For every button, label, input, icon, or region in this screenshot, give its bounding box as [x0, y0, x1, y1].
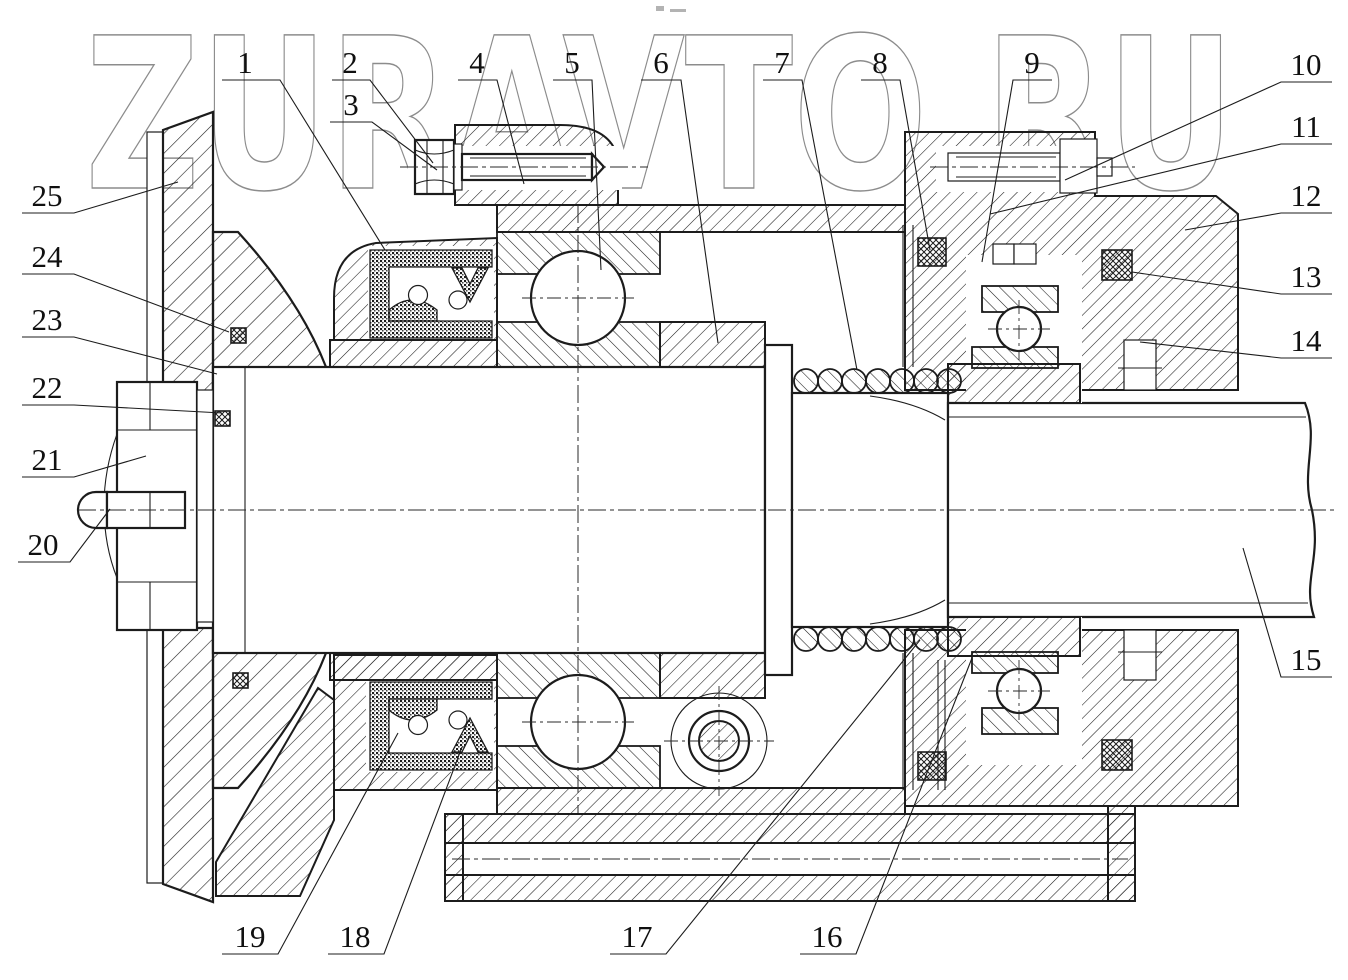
engineering-drawing-canvas: ZURAVTO.RU — [0, 0, 1348, 980]
housing-bottom-wall — [497, 788, 905, 814]
callout-10: 10 — [1291, 47, 1322, 82]
callout-24: 24 — [32, 239, 64, 274]
callout-19: 19 — [235, 919, 266, 954]
callout-15: 15 — [1291, 642, 1322, 677]
spacer-washer-lower — [1118, 630, 1162, 680]
callout-12: 12 — [1291, 178, 1322, 213]
callout-13: 13 — [1291, 259, 1322, 294]
callout-25: 25 — [32, 178, 63, 213]
shaft-hub-right-upper — [948, 364, 1080, 403]
callout-16: 16 — [812, 919, 843, 954]
callout-3: 3 — [343, 87, 359, 122]
callout-18: 18 — [340, 919, 371, 954]
spacer-washer-upper — [1118, 340, 1162, 390]
callout-1: 1 — [237, 45, 253, 80]
o-ring-lower-left — [918, 752, 946, 780]
o-ring-upper-right — [1102, 250, 1132, 280]
o-ring-lower-right — [1102, 740, 1132, 770]
callout-2: 2 — [342, 45, 358, 80]
technical-drawing: ZURAVTO.RU — [0, 0, 1348, 980]
callout-8: 8 — [872, 45, 888, 80]
shaft-hub-right-lower — [948, 617, 1080, 656]
callout-17: 17 — [622, 919, 653, 954]
lock-washer — [197, 390, 213, 622]
weep-hole — [664, 686, 774, 796]
callout-20: 20 — [28, 527, 59, 562]
callout-14: 14 — [1291, 323, 1323, 358]
callout-21: 21 — [32, 442, 63, 477]
callout-23: 23 — [32, 302, 63, 337]
callout-22: 22 — [32, 370, 63, 405]
inlet-pipe — [445, 806, 1135, 901]
callout-4: 4 — [469, 45, 485, 80]
callout-6: 6 — [653, 45, 669, 80]
callout-9: 9 — [1024, 45, 1040, 80]
callout-11: 11 — [1291, 109, 1321, 144]
callout-5: 5 — [564, 45, 580, 80]
o-ring-upper-left — [918, 238, 946, 266]
lock-plate — [993, 244, 1036, 264]
callout-7: 7 — [774, 45, 790, 80]
